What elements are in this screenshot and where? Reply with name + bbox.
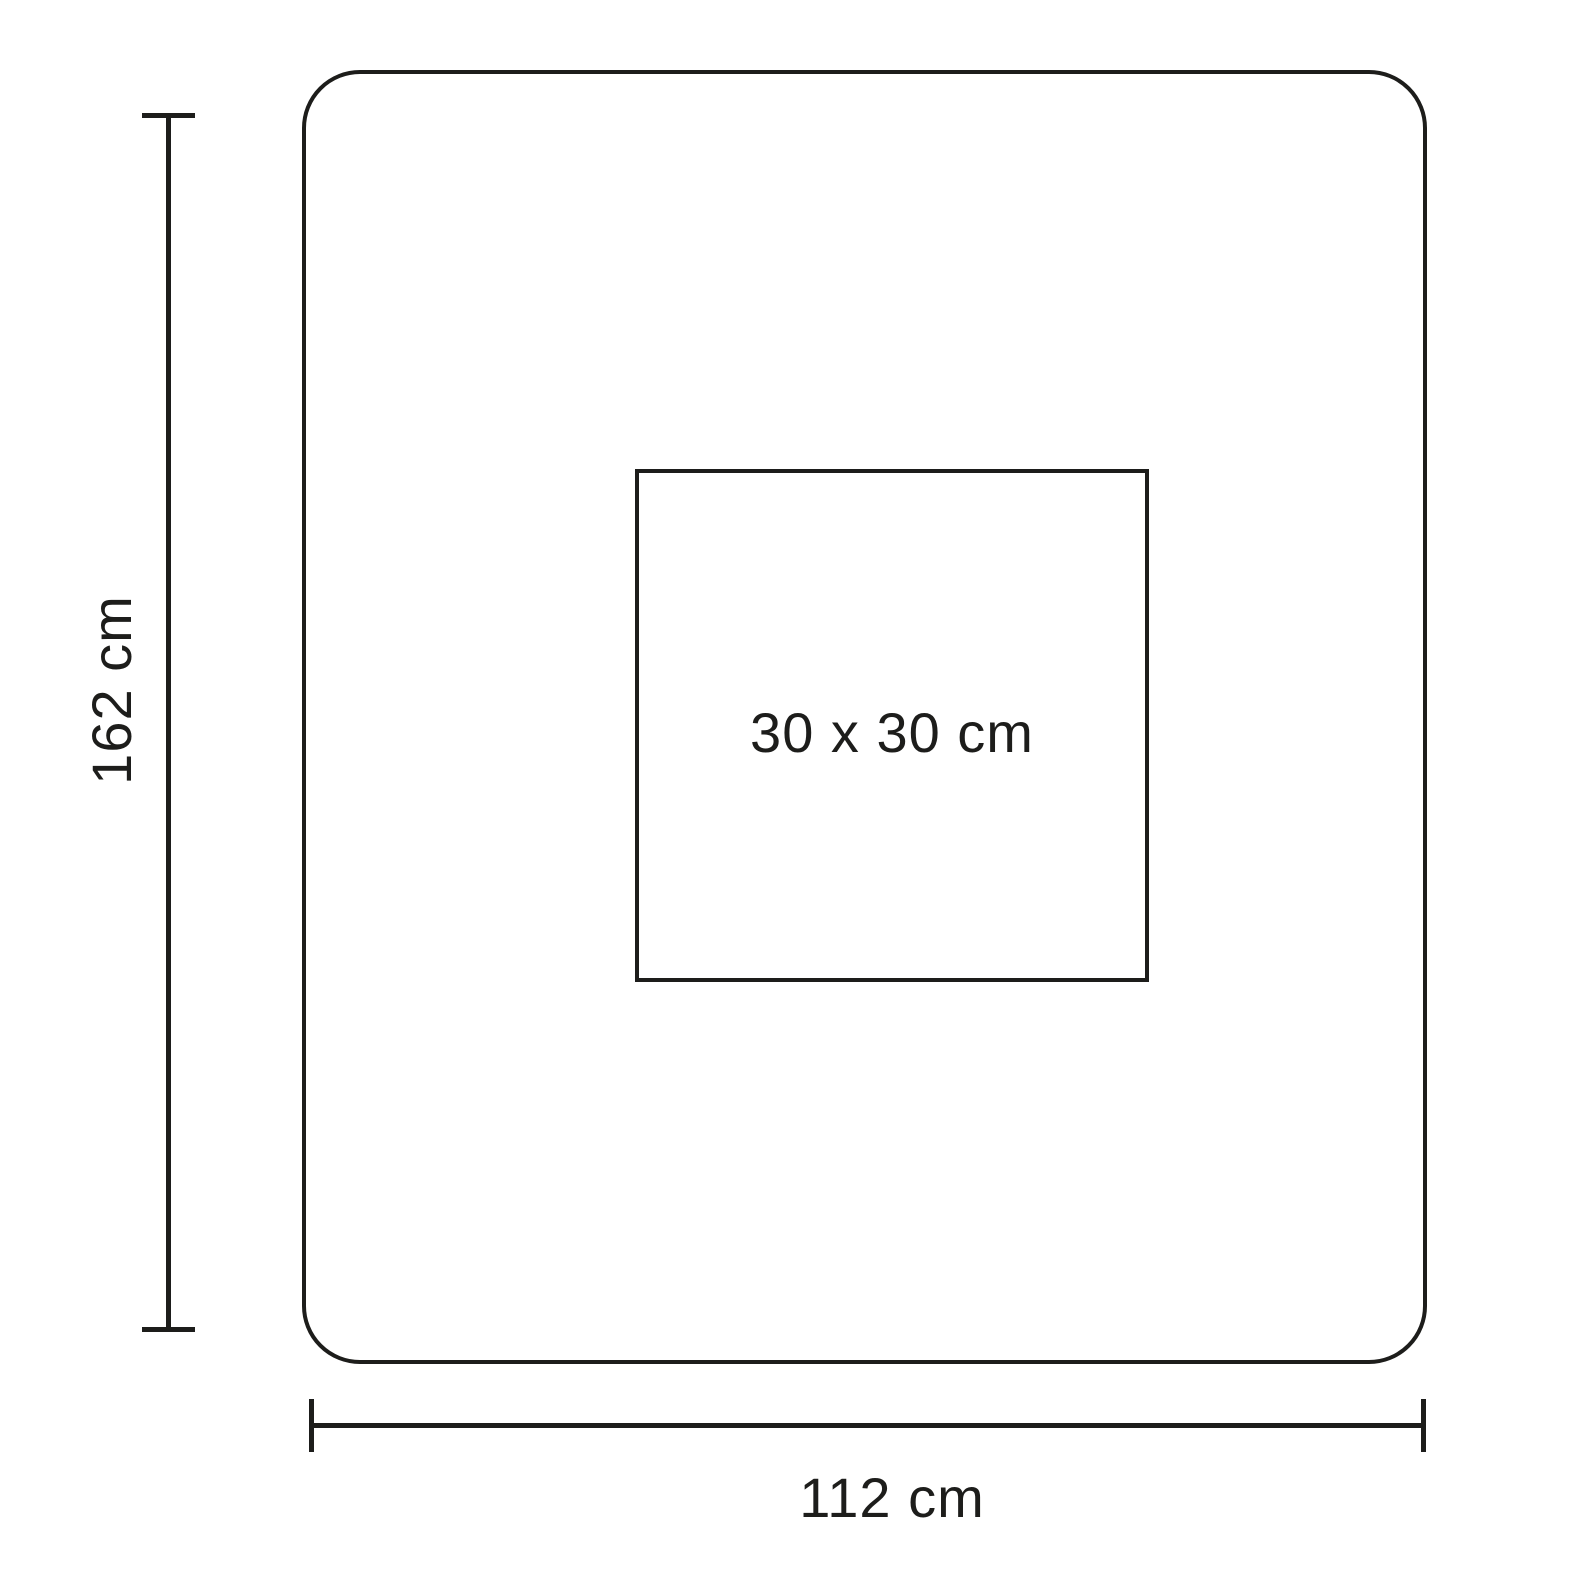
width-dimension-cap-right	[1421, 1399, 1426, 1452]
inner-square-outline: 30 x 30 cm	[635, 469, 1149, 982]
width-dimension-cap-left	[309, 1399, 314, 1452]
inner-square-size-label: 30 x 30 cm	[750, 705, 1034, 761]
height-dimension-cap-bottom	[142, 1327, 195, 1332]
width-dimension-label: 112 cm	[742, 1470, 1042, 1526]
height-dimension-cap-top	[142, 113, 195, 118]
width-dimension-line	[311, 1423, 1424, 1428]
height-dimension-line	[166, 115, 171, 1330]
height-dimension-label: 162 cm	[84, 540, 140, 840]
dimension-diagram: 30 x 30 cm 162 cm 112 cm	[0, 0, 1575, 1575]
